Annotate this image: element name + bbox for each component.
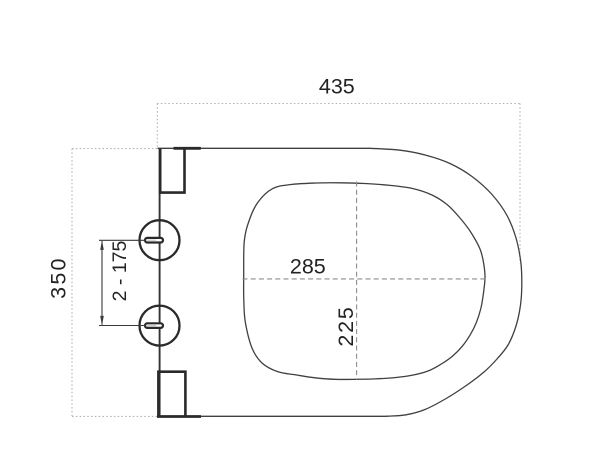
svg-text:225: 225 [334, 305, 358, 346]
svg-text:435: 435 [319, 75, 355, 99]
svg-text:350: 350 [47, 256, 71, 298]
svg-text:2 - 175: 2 - 175 [109, 240, 131, 301]
svg-text:285: 285 [290, 255, 326, 279]
